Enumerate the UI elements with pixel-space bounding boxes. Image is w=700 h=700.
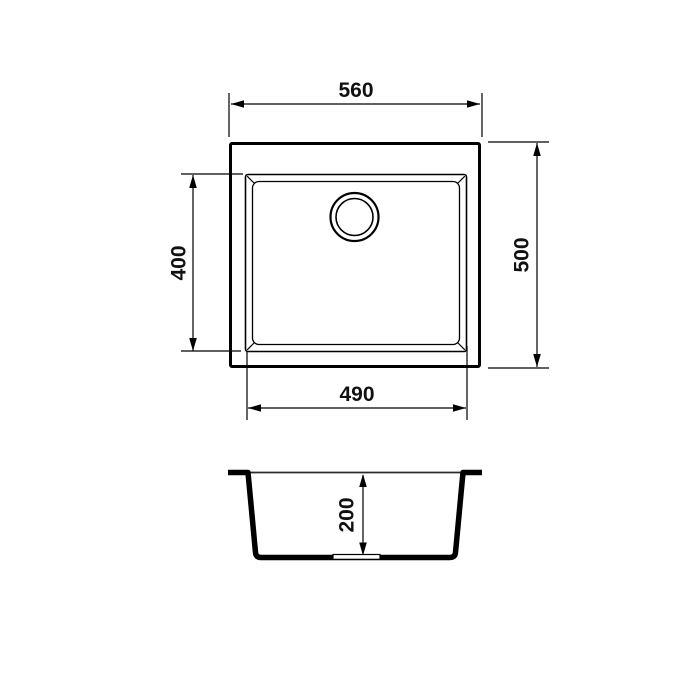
dim-bowl-height: 200 [336,474,367,556]
arrowhead-right [453,404,466,412]
drawing-canvas: 560 400 500 490 [0,0,700,700]
top-view [231,144,480,367]
bevel-top-left [247,176,254,183]
sink-dimension-drawing: 560 400 500 490 [0,0,700,700]
bowl-corner-bevels [247,176,465,350]
arrowhead-up [533,143,541,156]
bevel-bottom-left [247,343,254,350]
bowl-inner-edge [253,182,460,345]
section-drain-notch [333,555,380,560]
arrowhead-left [231,100,244,108]
arrowhead-down [533,354,541,367]
arrowhead-up [189,175,197,188]
bevel-top-right [458,176,465,183]
sink-outer-edge [231,144,480,367]
dim-label-200: 200 [336,497,359,532]
dim-bowl-width: 490 [247,346,467,420]
dim-label-500: 500 [511,237,534,272]
arrowhead-up [359,474,367,487]
drain-outer-ring [331,193,379,241]
arrowhead-down [359,543,367,556]
arrowhead-down [189,338,197,351]
dim-label-490: 490 [339,383,374,406]
section-view: 200 [228,473,482,560]
dim-overall-depth: 500 [488,142,549,368]
bevel-bottom-right [458,343,465,350]
arrowhead-right [467,100,480,108]
drain-circle [331,193,379,241]
bowl-outer-edge [246,175,467,352]
dim-label-560: 560 [338,79,373,102]
dim-overall-width: 560 [229,79,482,137]
dim-label-400: 400 [168,245,191,280]
drain-inner-ring [336,199,373,236]
arrowhead-left [248,404,261,412]
